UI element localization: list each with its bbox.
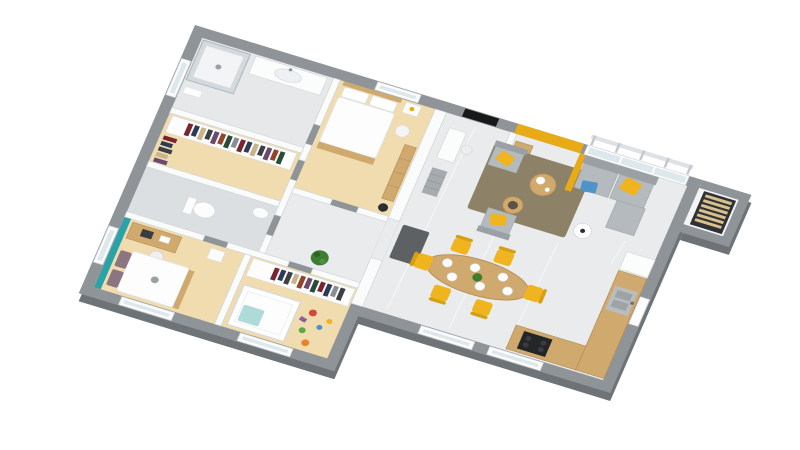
floor-plan-stage xyxy=(0,0,800,450)
armchair-pillow xyxy=(489,214,506,226)
floor-plan xyxy=(76,15,759,450)
floor-plan-svg xyxy=(0,0,800,450)
